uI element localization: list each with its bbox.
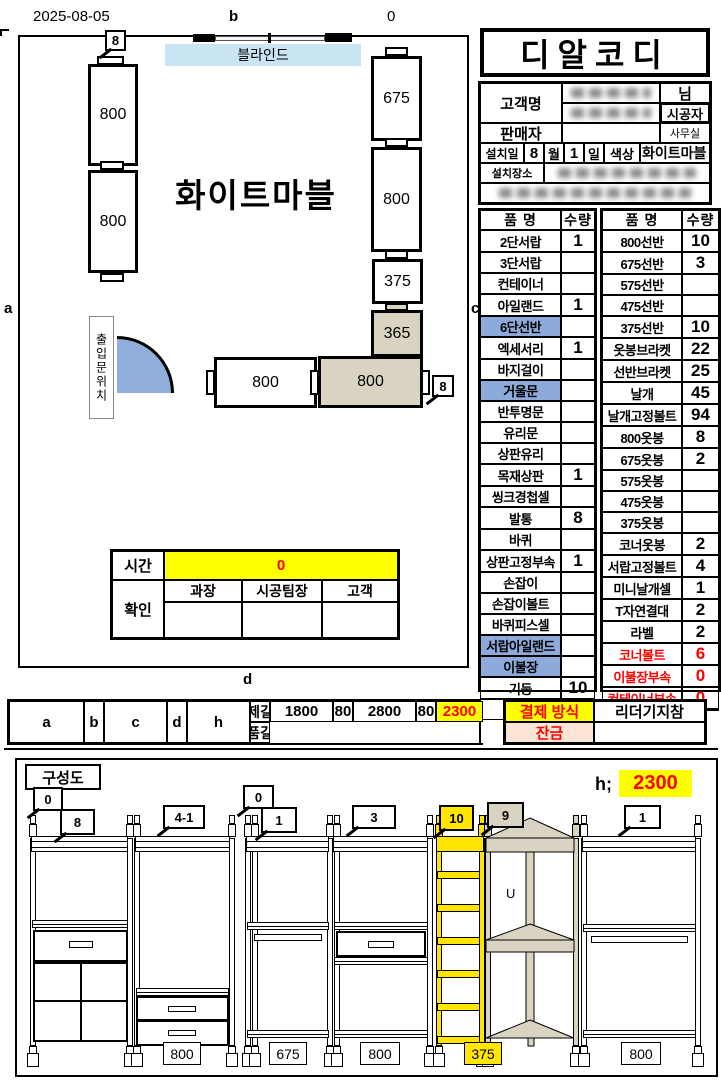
part-qty — [561, 422, 595, 443]
part-qty — [561, 380, 595, 401]
parts-row: 375옷봉 — [602, 512, 719, 533]
parts-row: 이불장 — [480, 656, 595, 677]
install-date-label: 설치일 — [480, 143, 524, 163]
brand-title: 디알코디 — [520, 30, 670, 76]
part-qty — [682, 491, 719, 512]
blinds-box: 블라인드 — [165, 44, 361, 66]
post-cap-top — [134, 815, 140, 824]
seg-c-product: 2740 — [270, 743, 333, 745]
part-qty — [561, 529, 595, 550]
cabinet-left-800-2: 800 — [88, 170, 138, 273]
parts-row: 반투명문 — [480, 401, 595, 422]
part-qty — [561, 656, 595, 677]
seg-h-key: h — [187, 701, 250, 743]
corner-bottom-shelf — [486, 1020, 574, 1038]
color-label: 색상 — [604, 143, 640, 163]
parts-row: 이불장부속 0 — [602, 665, 719, 687]
part-name: 손잡이 — [480, 572, 561, 593]
confirm-col-teamlead: 시공팀장 — [242, 580, 322, 602]
part-name: 발통 — [480, 507, 561, 529]
width-label-375: 375 — [464, 1042, 502, 1065]
part-name: 575선반 — [602, 274, 682, 295]
redacted-customer-phone — [562, 103, 660, 123]
parts-row: 아일랜드 1 — [480, 294, 595, 316]
parts-row: 날개고정볼트 94 — [602, 404, 719, 426]
parts-row: 2단서랍 1 — [480, 230, 595, 252]
callout-0-a: 0 — [33, 787, 63, 811]
marker-d: d — [243, 671, 252, 688]
post — [245, 838, 251, 1046]
top-beam — [31, 836, 128, 852]
shelf — [334, 922, 428, 930]
top-beam — [582, 836, 696, 852]
window-block-left — [193, 34, 215, 42]
part-qty: 3 — [682, 252, 719, 274]
customer-label: 고객명 — [480, 83, 562, 123]
width-label-800-2: 800 — [360, 1042, 400, 1065]
seg-b-product: 0 — [187, 743, 250, 745]
cabinet-connector — [385, 303, 408, 311]
redaction — [571, 108, 652, 118]
part-qty: 0 — [682, 665, 719, 687]
install-day-value: 1 — [564, 143, 584, 163]
height-note-value: 2300 — [619, 770, 692, 797]
cabinet-right-800: 800 — [371, 147, 422, 252]
post-cap-top — [245, 815, 251, 824]
part-qty: 4 — [682, 555, 719, 577]
part-name: 유리문 — [480, 422, 561, 443]
height-note-label: h; — [595, 774, 612, 795]
part-name: 바지걸이 — [480, 359, 561, 380]
parts-right-header: 품 명 수량 — [602, 210, 719, 230]
redaction — [571, 88, 652, 98]
part-qty: 2 — [682, 448, 719, 470]
seg-b-key: b — [84, 701, 104, 743]
parts-row: 코너옷봉 2 — [602, 533, 719, 555]
part-qty: 1 — [561, 230, 595, 252]
part-qty: 8 — [561, 507, 595, 529]
drawer-cell — [33, 1000, 82, 1042]
cabinet-bottom-800: 800 — [214, 357, 317, 408]
seller-label: 판매자 — [480, 123, 562, 143]
cabinet-connector — [385, 47, 408, 56]
callout-9: 9 — [487, 802, 524, 828]
post — [581, 838, 587, 1046]
confirm-col-customer: 고객 — [322, 580, 398, 602]
part-qty: 10 — [561, 677, 595, 699]
sign-cell — [242, 602, 322, 638]
cabinet-side-tab — [310, 370, 319, 395]
part-qty — [682, 512, 719, 533]
part-name: 675선반 — [602, 252, 682, 274]
cabinet-right-365: 365 — [371, 310, 423, 357]
seg-a-key: a — [9, 701, 84, 743]
cabinet-left-800-1: 800 — [88, 64, 138, 166]
corner-beam-mid — [486, 940, 574, 952]
redacted-address-1 — [544, 163, 710, 183]
foot-base — [433, 1053, 445, 1067]
part-name: 상판고정부속 — [480, 550, 561, 572]
part-name: 아일랜드 — [480, 294, 561, 316]
yellow-shelf — [437, 904, 480, 912]
parts-row: 기둥 10 — [480, 677, 595, 699]
part-name: 기둥 — [480, 677, 561, 699]
parts-row: 손잡이 — [480, 572, 595, 593]
post-cap-top — [229, 815, 235, 824]
hook-symbol: U — [506, 886, 515, 901]
drawer-handle — [368, 941, 394, 948]
seg-b-actual: 2800 — [333, 701, 353, 722]
bottom-rail — [583, 1030, 696, 1038]
callout-8-right: 8 — [432, 375, 454, 397]
parts-row: 475옷봉 — [602, 491, 719, 512]
part-name: 800선반 — [602, 230, 682, 252]
redacted-address-2 — [480, 183, 710, 203]
col-qty: 수량 — [682, 210, 719, 230]
part-name: T자연결대 — [602, 599, 682, 621]
post — [427, 838, 433, 1046]
cabinet-side-tab — [206, 370, 215, 395]
part-name: 6단선반 — [480, 316, 561, 337]
post-cap-top — [334, 815, 340, 824]
part-qty: 2 — [682, 599, 719, 621]
top-beam — [135, 836, 230, 852]
callout-10: 10 — [439, 805, 474, 831]
seller-value-empty — [562, 123, 660, 143]
yellow-shelf — [437, 871, 480, 879]
part-name: 이불장부속 — [602, 665, 682, 687]
callout-8-top: 8 — [105, 30, 126, 51]
clothes-rod — [591, 936, 688, 943]
part-name: 상판유리 — [480, 443, 561, 464]
parts-row: 675옷봉 2 — [602, 448, 719, 470]
payment-method-value: 리더기지참 — [594, 701, 705, 722]
window-tick — [268, 33, 271, 43]
parts-row: 날개 45 — [602, 382, 719, 404]
part-qty — [682, 470, 719, 491]
yellow-shelf — [437, 1003, 480, 1011]
parts-table-right: 품 명 수량 800선반 10 675선반 3 575선반 — [600, 208, 721, 692]
blinds-label: 블라인드 — [237, 45, 289, 65]
foot-base — [27, 1053, 39, 1067]
door-location-label: 출입문위치 — [89, 316, 114, 419]
post — [229, 838, 235, 1046]
parts-row: 선반브라켓 25 — [602, 360, 719, 382]
part-name: 미니날개셀 — [602, 577, 682, 599]
parts-row: 목재상판 1 — [480, 464, 595, 486]
post-cap-top — [127, 815, 133, 824]
part-qty — [561, 593, 595, 614]
seg-d-actual: 1800 — [416, 701, 436, 722]
drawer-cell — [80, 962, 128, 1002]
part-name: 씽크경첩셀 — [480, 486, 561, 507]
part-qty: 1 — [561, 337, 595, 359]
part-name: 선반브라켓 — [602, 360, 682, 382]
honorific-label: 님 — [660, 83, 710, 103]
part-name: 엑세서리 — [480, 337, 561, 359]
parts-row: 라벨 2 — [602, 621, 719, 643]
width-label-675: 675 — [269, 1042, 307, 1065]
color-value: 화이트마블 — [640, 143, 710, 163]
order-sheet: 2025-08-05 b 0 a c d 블라인드 8 800 800 675 … — [0, 0, 721, 1081]
marker-b: b — [229, 8, 238, 25]
part-name: 475선반 — [602, 295, 682, 316]
callout-4-1: 4-1 — [163, 805, 205, 829]
part-qty — [561, 486, 595, 507]
corner-mid-shelf — [486, 924, 574, 940]
parts-row: 475선반 — [602, 295, 719, 316]
parts-left-header: 품 명 수량 — [480, 210, 595, 230]
parts-row: 옷봉브라켓 22 — [602, 338, 719, 360]
drawer-cell — [33, 962, 82, 1002]
corner-foot — [528, 1038, 534, 1046]
day-label: 일 — [584, 143, 604, 163]
shelf — [32, 920, 128, 928]
part-qty: 94 — [682, 404, 719, 426]
parts-row: 발통 8 — [480, 507, 595, 529]
seg-a-product: 1675 — [104, 743, 167, 745]
part-qty: 8 — [682, 426, 719, 448]
col-item-name: 품 명 — [480, 210, 561, 230]
parts-row: 미니날개셀 1 — [602, 577, 719, 599]
post — [327, 838, 333, 1046]
cabinet-bottom-800-tan: 800 — [318, 356, 423, 408]
part-name: 800옷봉 — [602, 426, 682, 448]
part-name: 675옷봉 — [602, 448, 682, 470]
callout-1-a: 1 — [261, 807, 297, 833]
part-qty — [561, 443, 595, 464]
seg-c-actual: 2800 — [353, 701, 416, 722]
part-name: 반투명문 — [480, 401, 561, 422]
post — [695, 838, 701, 1046]
part-name: 이불장 — [480, 656, 561, 677]
parts-row: 800선반 10 — [602, 230, 719, 252]
part-qty — [561, 316, 595, 337]
foot-base — [226, 1053, 238, 1067]
seg-c-key: c — [104, 701, 167, 743]
drawer-cell — [80, 1000, 128, 1042]
callout-3: 3 — [352, 805, 396, 829]
part-qty: 1 — [682, 577, 719, 599]
bottom-rail — [334, 1030, 428, 1038]
part-qty — [561, 401, 595, 422]
redacted-customer-name — [562, 83, 660, 103]
corner-beam-top — [486, 838, 574, 852]
part-name: 손잡이볼트 — [480, 593, 561, 614]
callout-0-b: 0 — [243, 785, 274, 809]
post-cap-top — [427, 815, 433, 824]
part-name: 코너옷봉 — [602, 533, 682, 555]
part-name: 목재상판 — [480, 464, 561, 486]
balance-value — [594, 722, 705, 743]
actual-length-label: 실제길이 — [250, 701, 270, 722]
parts-row: 3단서랍 — [480, 252, 595, 273]
post — [252, 838, 258, 1046]
part-qty — [682, 295, 719, 316]
part-qty: 25 — [682, 360, 719, 382]
part-name: 3단서랍 — [480, 252, 561, 273]
install-month-value: 8 — [524, 143, 544, 163]
parts-row: 375선반 10 — [602, 316, 719, 338]
time-value: 0 — [164, 551, 398, 580]
foot-base — [249, 1053, 261, 1067]
width-label-800-3: 800 — [621, 1042, 661, 1065]
part-name: 바퀴 — [480, 529, 561, 550]
foot-base — [331, 1053, 343, 1067]
part-name: 날개고정볼트 — [602, 404, 682, 426]
part-qty: 22 — [682, 338, 719, 360]
parts-right-body: 800선반 10 675선반 3 575선반 475선반 — [602, 230, 719, 711]
width-label-800-1: 800 — [163, 1042, 201, 1065]
parts-row: 바퀴 — [480, 529, 595, 550]
cabinet-connector — [100, 273, 124, 282]
parts-row: 거울문 — [480, 380, 595, 401]
redaction — [499, 188, 691, 198]
sign-cell — [322, 602, 398, 638]
parts-row: 상판유리 — [480, 443, 595, 464]
part-qty: 1 — [561, 464, 595, 486]
part-qty: 2 — [682, 621, 719, 643]
part-qty: 10 — [682, 316, 719, 338]
part-qty — [561, 614, 595, 635]
confirm-label: 확인 — [112, 580, 164, 638]
parts-row: 800옷봉 8 — [602, 426, 719, 448]
part-name: 575옷봉 — [602, 470, 682, 491]
rail — [334, 957, 428, 965]
cabinet-connector — [385, 250, 408, 259]
part-name: 코너볼트 — [602, 643, 682, 665]
part-qty: 1 — [561, 550, 595, 572]
yellow-shelf — [437, 970, 480, 978]
parts-row: 유리문 — [480, 422, 595, 443]
parts-row: 바퀴피스셀 — [480, 614, 595, 635]
part-name: 바퀴피스셀 — [480, 614, 561, 635]
parts-row: 컨테이너 — [480, 273, 595, 294]
clothes-rod — [254, 934, 322, 941]
parts-row: 575선반 — [602, 274, 719, 295]
cabinet-right-375: 375 — [372, 259, 423, 304]
seg-a-actual: 1800 — [270, 701, 333, 722]
parts-row: 575옷봉 — [602, 470, 719, 491]
drawer-handle — [69, 941, 93, 948]
finish-color-text: 화이트마블 — [148, 170, 364, 216]
page-divider — [4, 748, 718, 750]
parts-row: 675선반 3 — [602, 252, 719, 274]
bottom-rail — [247, 1030, 329, 1038]
part-name: 375옷봉 — [602, 512, 682, 533]
marker-zero: 0 — [387, 8, 395, 25]
payment-method-label: 결제 방식 — [505, 701, 594, 722]
part-qty: 45 — [682, 382, 719, 404]
foot-base — [131, 1053, 143, 1067]
sign-cell — [164, 602, 242, 638]
marker-a: a — [4, 300, 12, 317]
part-name: 2단서랍 — [480, 230, 561, 252]
part-name: 거울문 — [480, 380, 561, 401]
col-qty: 수량 — [561, 210, 595, 230]
seg-h-product: 화이트마블 — [436, 743, 483, 745]
part-qty — [561, 273, 595, 294]
callout-8: 8 — [60, 809, 95, 835]
parts-row: 씽크경첩셀 — [480, 486, 595, 507]
parts-row: 서랍고정볼트 4 — [602, 555, 719, 577]
part-name: 서랍고정볼트 — [602, 555, 682, 577]
drawer-handle — [168, 1030, 196, 1036]
parts-row: T자연결대 2 — [602, 599, 719, 621]
cabinet-right-675: 675 — [371, 56, 422, 141]
parts-table-left: 품 명 수량 2단서랍 1 3단서랍 컨테이너 — [478, 208, 597, 692]
post-cap-top — [581, 815, 587, 824]
shelf — [583, 924, 696, 932]
cabinet-side-tab — [421, 370, 430, 395]
date-label: 2025-08-05 — [33, 8, 110, 25]
brand-title-box: 디알코디 — [480, 28, 710, 77]
redaction — [558, 168, 696, 178]
part-name: 옷봉브라켓 — [602, 338, 682, 360]
part-qty — [561, 635, 595, 656]
balance-label: 잔금 — [505, 722, 594, 743]
seg-d-key: d — [167, 701, 187, 743]
foot-base — [692, 1053, 704, 1067]
part-qty: 6 — [682, 643, 719, 665]
yellow-shelf — [437, 937, 480, 945]
part-name: 컨테이너 — [480, 273, 561, 294]
parts-row: 바지걸이 — [480, 359, 595, 380]
parts-row: 코너볼트 6 — [602, 643, 719, 665]
time-table: 시간 0 확인 과장 시공팀장 고객 — [110, 549, 400, 640]
measure-table: 실제길이 a 1800 b 2800 c 2800 d 1800 h 2300 … — [7, 699, 481, 745]
location-label: 설치장소 — [480, 163, 544, 183]
parts-row: 6단선반 — [480, 316, 595, 337]
post-cap-top — [327, 815, 333, 824]
callout-1-b: 1 — [624, 805, 661, 829]
foot-base — [578, 1053, 590, 1067]
part-name: 서랍아일랜드 — [480, 635, 561, 656]
window-block-right — [325, 33, 352, 42]
seg-d-product: 1675 — [353, 743, 416, 745]
parts-row: 손잡이볼트 — [480, 593, 595, 614]
cabinet-connector — [100, 161, 124, 170]
part-qty — [561, 359, 595, 380]
corner-unit: U — [484, 812, 576, 1048]
customer-info-table: 고객명 님 시공자 판매자 사무실 설치일 8 월 1 일 색상 화이트마블 설… — [478, 81, 712, 205]
seg-h-actual: 2300 — [436, 701, 483, 722]
corner-tick — [0, 29, 9, 36]
part-qty — [561, 572, 595, 593]
parts-row: 서랍아일랜드 — [480, 635, 595, 656]
part-qty — [682, 274, 719, 295]
part-qty: 2 — [682, 533, 719, 555]
shelf — [136, 988, 229, 996]
parts-left-body: 2단서랍 1 3단서랍 컨테이너 아일랜드 1 — [480, 230, 595, 699]
col-item-name: 품 명 — [602, 210, 682, 230]
top-beam-yellow — [436, 836, 484, 852]
top-beam — [333, 836, 428, 852]
drawer-handle — [168, 1006, 196, 1012]
parts-row: 엑세서리 1 — [480, 337, 595, 359]
part-name: 475옷봉 — [602, 491, 682, 512]
time-label: 시간 — [112, 551, 164, 580]
installer-label: 시공자 — [660, 103, 710, 123]
confirm-col-manager: 과장 — [164, 580, 242, 602]
product-length-label: 제품길이 — [250, 722, 270, 743]
office-label: 사무실 — [660, 123, 710, 143]
payment-table: 결제 방식 리더기지참 잔금 — [503, 699, 707, 745]
part-qty — [561, 252, 595, 273]
parts-row: 상판고정부속 1 — [480, 550, 595, 572]
part-name: 라벨 — [602, 621, 682, 643]
post-cap-top — [695, 815, 701, 824]
